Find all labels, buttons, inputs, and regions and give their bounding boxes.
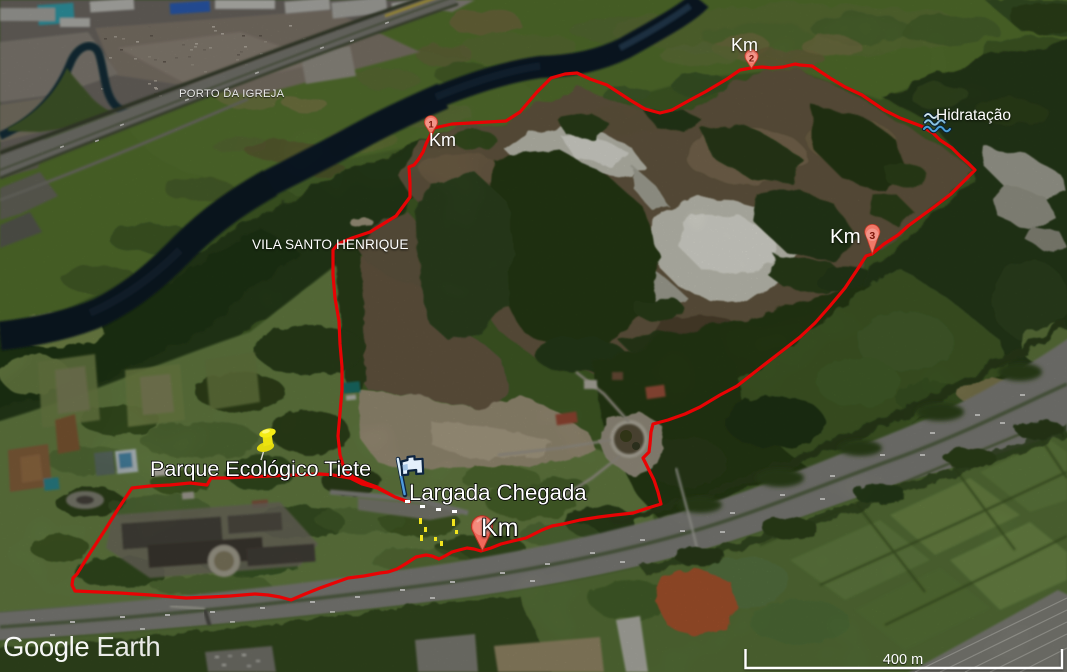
svg-text:Parque Ecológico Tiete: Parque Ecológico Tiete [150,457,371,481]
svg-text:400 m: 400 m [883,652,923,668]
svg-text:Km: Km [481,514,519,542]
svg-text:PORTO DA IGREJA: PORTO DA IGREJA [179,88,285,100]
svg-text:Km: Km [429,130,456,150]
svg-text:Largada Chegada: Largada Chegada [409,480,587,505]
svg-text:Google Earth: Google Earth [3,631,160,662]
svg-text:Km: Km [731,35,758,55]
svg-text:Hidratação: Hidratação [936,107,1011,124]
svg-text:1: 1 [428,119,434,130]
svg-text:3: 3 [869,230,875,242]
svg-text:Km: Km [830,225,861,248]
svg-text:VILA SANTO HENRIQUE: VILA SANTO HENRIQUE [252,237,409,252]
